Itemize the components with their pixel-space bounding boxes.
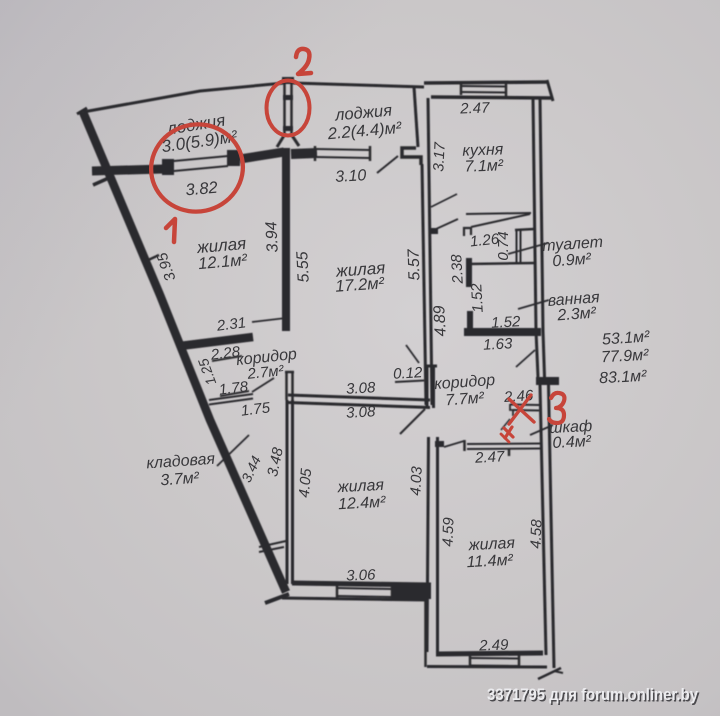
svg-text:11.4м²: 11.4м² bbox=[466, 552, 514, 571]
svg-text:3.94: 3.94 bbox=[263, 221, 282, 253]
svg-text:2.49: 2.49 bbox=[478, 636, 509, 654]
svg-text:4.58: 4.58 bbox=[527, 518, 545, 548]
svg-text:4.89: 4.89 bbox=[431, 305, 450, 337]
svg-text:7.7м²: 7.7м² bbox=[445, 390, 485, 410]
svg-text:2.3м²: 2.3м² bbox=[556, 305, 597, 325]
svg-text:3.08: 3.08 bbox=[346, 403, 377, 422]
svg-text:7.1м²: 7.1м² bbox=[464, 157, 504, 175]
svg-text:1.52: 1.52 bbox=[468, 282, 487, 313]
svg-text:0.9м²: 0.9м² bbox=[552, 251, 592, 271]
svg-text:2.47: 2.47 bbox=[459, 99, 490, 117]
svg-text:1.63: 1.63 bbox=[483, 335, 514, 354]
svg-text:1.52: 1.52 bbox=[491, 313, 522, 332]
svg-text:2.47: 2.47 bbox=[474, 448, 506, 467]
svg-text:4.03: 4.03 bbox=[407, 465, 426, 496]
svg-text:3.7м²: 3.7м² bbox=[160, 470, 200, 490]
svg-text:4.05: 4.05 bbox=[296, 467, 316, 498]
svg-text:2.38: 2.38 bbox=[448, 253, 467, 285]
svg-text:3.17: 3.17 bbox=[430, 141, 449, 172]
svg-text:4.59: 4.59 bbox=[439, 516, 457, 546]
svg-text:12.4м²: 12.4м² bbox=[338, 494, 387, 513]
svg-text:3.06: 3.06 bbox=[346, 566, 376, 584]
svg-text:0.74: 0.74 bbox=[495, 231, 512, 260]
svg-text:17.2м²: 17.2м² bbox=[335, 274, 386, 295]
svg-text:83.1м²: 83.1м² bbox=[599, 368, 648, 387]
svg-text:3.82: 3.82 bbox=[185, 179, 219, 200]
svg-text:77.9м²: 77.9м² bbox=[601, 347, 650, 366]
svg-text:1.75: 1.75 bbox=[240, 399, 272, 420]
svg-text:3371795 для forum.onliner.by: 3371795 для forum.onliner.by bbox=[487, 686, 699, 704]
svg-text:0.12: 0.12 bbox=[393, 364, 424, 383]
svg-text:3.08: 3.08 bbox=[346, 379, 377, 398]
svg-text:5.57: 5.57 bbox=[405, 248, 423, 281]
svg-text:1.78: 1.78 bbox=[218, 378, 250, 399]
svg-text:0.4м²: 0.4м² bbox=[552, 433, 592, 452]
svg-text:5.55: 5.55 bbox=[294, 251, 313, 283]
svg-text:53.1м²: 53.1м² bbox=[601, 328, 650, 348]
svg-text:3.10: 3.10 bbox=[335, 167, 367, 186]
